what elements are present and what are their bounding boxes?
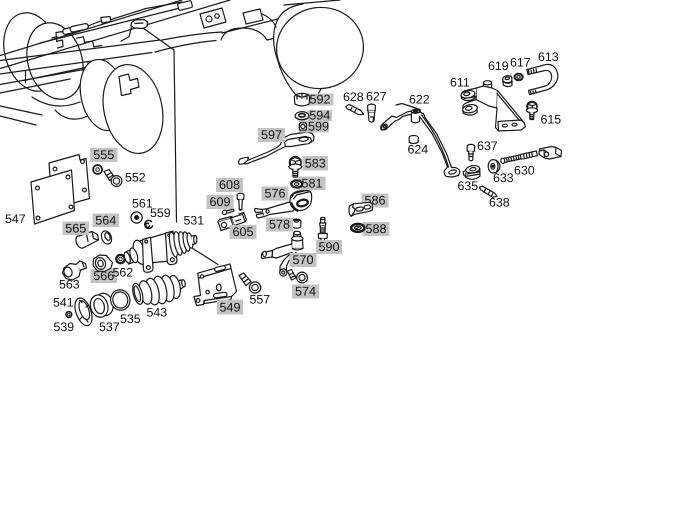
svg-text:583: 583 (305, 157, 326, 171)
svg-text:637: 637 (477, 139, 498, 153)
svg-text:555: 555 (93, 148, 114, 162)
svg-text:615: 615 (541, 113, 562, 127)
svg-text:541: 541 (53, 296, 74, 310)
svg-text:564: 564 (95, 213, 116, 227)
svg-text:592: 592 (309, 93, 330, 107)
svg-text:549: 549 (219, 300, 240, 314)
svg-text:590: 590 (318, 240, 339, 254)
svg-text:559: 559 (150, 206, 171, 220)
svg-text:557: 557 (250, 293, 271, 307)
svg-text:613: 613 (538, 50, 559, 64)
svg-text:543: 543 (147, 306, 168, 320)
svg-text:630: 630 (514, 164, 535, 178)
svg-text:619: 619 (488, 59, 509, 73)
svg-text:539: 539 (54, 320, 75, 334)
svg-text:599: 599 (308, 120, 329, 134)
svg-text:552: 552 (125, 171, 146, 185)
svg-text:547: 547 (5, 212, 26, 226)
svg-text:576: 576 (264, 187, 285, 201)
svg-text:574: 574 (295, 285, 316, 299)
svg-text:633: 633 (493, 171, 514, 185)
svg-text:570: 570 (292, 253, 313, 267)
svg-text:537: 537 (99, 320, 120, 334)
svg-text:605: 605 (232, 225, 253, 239)
svg-text:627: 627 (366, 90, 387, 104)
svg-text:578: 578 (269, 218, 290, 232)
svg-text:597: 597 (261, 128, 282, 142)
svg-text:565: 565 (65, 221, 86, 235)
svg-text:635: 635 (458, 179, 479, 193)
svg-text:581: 581 (301, 176, 322, 190)
svg-text:563: 563 (59, 278, 80, 292)
svg-text:588: 588 (365, 222, 386, 236)
svg-text:628: 628 (343, 90, 364, 104)
svg-text:624: 624 (408, 143, 429, 157)
svg-text:535: 535 (120, 312, 141, 326)
svg-text:617: 617 (510, 56, 531, 70)
svg-text:608: 608 (219, 178, 240, 192)
svg-text:611: 611 (450, 76, 470, 90)
svg-text:562: 562 (113, 266, 134, 280)
svg-text:622: 622 (409, 93, 430, 107)
svg-text:638: 638 (489, 196, 510, 210)
svg-text:531: 531 (184, 214, 205, 228)
svg-text:609: 609 (209, 195, 230, 209)
